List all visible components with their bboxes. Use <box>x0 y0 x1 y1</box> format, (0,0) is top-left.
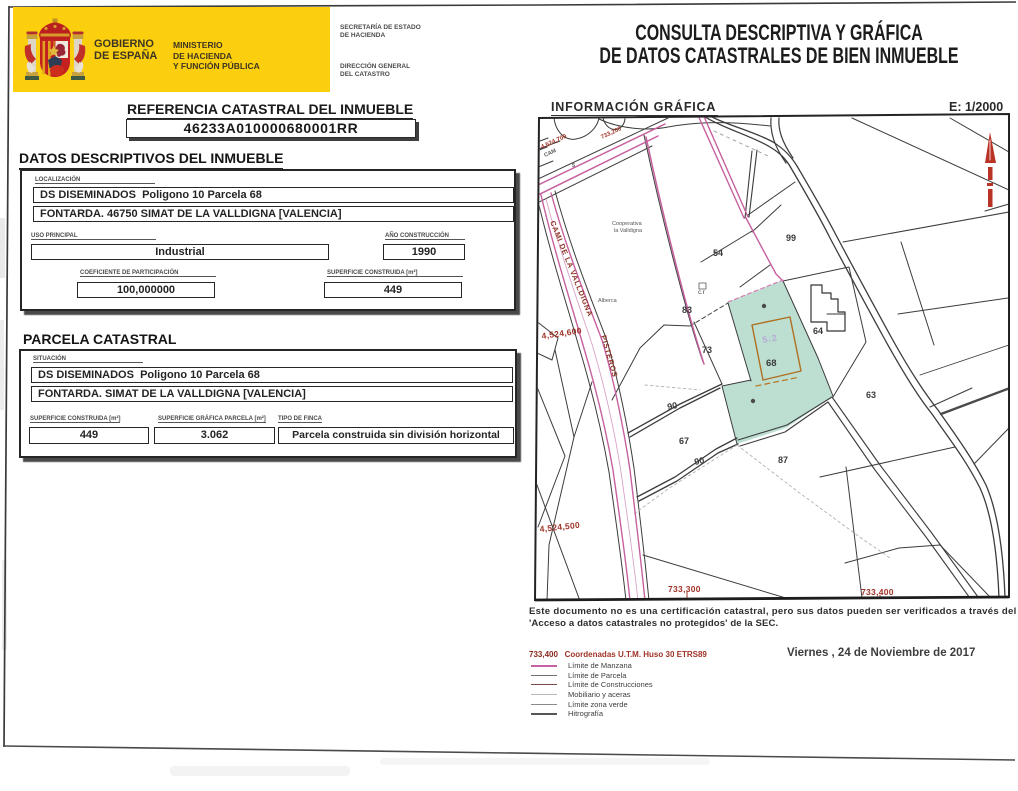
svg-text:73: 73 <box>702 345 712 355</box>
svg-text:Cooperativa: Cooperativa <box>612 221 643 227</box>
svg-text:la Valldigna: la Valldigna <box>614 228 643 234</box>
svg-text:c.r: c.r <box>698 290 705 296</box>
svg-text:Alberca: Alberca <box>598 298 618 304</box>
svg-text:67: 67 <box>679 436 689 446</box>
svg-text:90: 90 <box>666 400 678 412</box>
svg-text:90: 90 <box>693 455 705 467</box>
svg-text:64: 64 <box>813 326 823 336</box>
svg-text:54: 54 <box>713 248 723 258</box>
svg-text:CAMI DE LA VALLDIGNA: CAMI DE LA VALLDIGNA <box>548 219 595 318</box>
svg-text:733,300: 733,300 <box>668 584 701 594</box>
svg-text:68: 68 <box>766 358 777 369</box>
svg-text:733,400: 733,400 <box>861 587 894 597</box>
svg-text:63: 63 <box>866 390 876 400</box>
svg-text:PISTEROS: PISTEROS <box>599 334 620 378</box>
svg-text:83: 83 <box>682 305 692 315</box>
svg-text:5: 5 <box>572 163 575 169</box>
svg-text:87: 87 <box>778 455 788 465</box>
svg-text:99: 99 <box>786 233 796 243</box>
svg-text:4,524,500: 4,524,500 <box>539 520 580 534</box>
svg-text:733,200: 733,200 <box>600 126 623 141</box>
